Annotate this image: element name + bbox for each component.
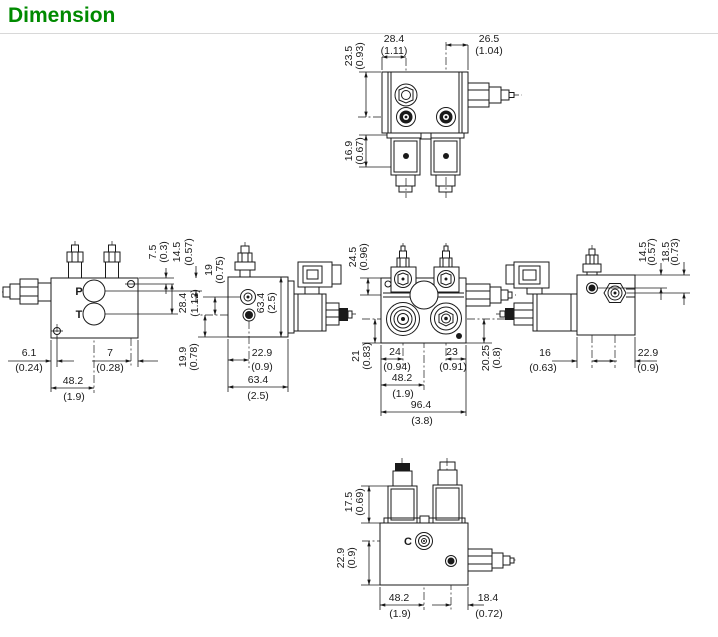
dim-top-width-right-inch: (1.04) — [475, 45, 502, 57]
dim-front-width-inch: (3.8) — [411, 415, 433, 427]
dim-b-port-left-mm: 22.9 — [252, 347, 273, 359]
valve-dimension-drawing: 28.4 (1.11) 26.5 (1.04) 23.5 (0.93) 16.9… — [0, 0, 718, 637]
top-coil-left — [387, 133, 424, 192]
port-t-label: T — [76, 309, 83, 321]
dim-hole-left-inch: (0.24) — [15, 362, 42, 374]
top-coil-right — [427, 133, 464, 192]
dim-right-screw-depth-inch: (0.57) — [646, 238, 658, 265]
bottom-right-fitting — [468, 549, 514, 571]
right-side-stud — [583, 249, 601, 275]
dim-bottom-outlet-offset-inch: (0.72) — [475, 608, 502, 620]
dim-front-half-width-mm: 48.2 — [392, 372, 413, 384]
front-hole-br — [456, 333, 462, 339]
dim-right-port-offset-inch: (0.9) — [637, 362, 659, 374]
dim-port-t-depth-inch: (1.12) — [189, 289, 201, 316]
side-view-b: 63.4 (2.5) 19 (0.75) — [177, 242, 357, 402]
dim-bottom-coil-height-inch: (0.69) — [354, 488, 366, 515]
top-right-fitting — [468, 83, 514, 107]
dim-port-center-mm: 48.2 — [63, 375, 84, 387]
left-side-view: P T 7.5 (0.3) 14.5 (0.57) 28.4 — [2, 238, 202, 403]
dim-top-coil-height-inch: (0.67) — [354, 137, 366, 164]
dim-port-p-depth-inch: (0.57) — [183, 238, 195, 265]
dim-hole-top-inch: (0.3) — [158, 241, 170, 263]
dim-top-height-upper-inch: (0.93) — [354, 42, 366, 69]
right-side-view: 14.5 (0.57) 18.5 (0.73) 16 (0.63) 22.9 (… — [496, 238, 690, 374]
front-right-fitting — [466, 284, 512, 306]
dim-b-depth-inch: (2.5) — [247, 390, 269, 402]
front-cartridge-left — [391, 246, 416, 292]
dim-port-p-depth-mm: 14.5 — [171, 242, 183, 263]
bottom-port-c — [416, 533, 433, 550]
dim-front-port-a-mm: 24 — [389, 346, 401, 358]
dim-bottom-port-edge-inch: (0.9) — [346, 547, 358, 569]
dim-hole-right-mm: 7 — [107, 347, 113, 359]
dim-b-port-left-inch: (0.9) — [251, 361, 273, 373]
top-view: 28.4 (1.11) 26.5 (1.04) 23.5 (0.93) 16.9… — [343, 33, 522, 198]
dim-port-center-inch: (1.9) — [63, 391, 85, 403]
dim-top-width-left-inch: (1.11) — [381, 45, 408, 57]
dim-b-depth-mm: 63.4 — [248, 374, 269, 386]
side-b-stud — [235, 246, 255, 277]
dim-front-top-axis-inch: (0.96) — [358, 243, 370, 270]
front-cartridge-right — [434, 246, 459, 292]
bottom-coil-left — [384, 463, 420, 523]
dim-bottom-port-center-inch: (1.9) — [389, 608, 411, 620]
dimension-drawing-page: Dimension — [0, 0, 718, 637]
front-view: 24.5 (0.96) 21 (0.83) 20.25 (0.8) 24 (0.… — [347, 243, 516, 427]
dim-front-port-b-mm: 23 — [446, 346, 458, 358]
bottom-view: C 17.5 (0. — [335, 458, 518, 620]
dim-front-port-b-inch: (0.91) — [439, 361, 466, 373]
dim-b-port-bottom-inch: (0.78) — [188, 343, 200, 370]
dim-right-screw-offset-mm: 16 — [539, 347, 551, 359]
dim-front-width-mm: 96.4 — [411, 399, 432, 411]
dim-hole-right-inch: (0.28) — [96, 362, 123, 374]
dim-bottom-outlet-offset-mm: 18.4 — [478, 592, 499, 604]
port-p-label: P — [75, 286, 82, 298]
side-b-solenoid — [288, 262, 352, 333]
dim-right-port-depth-inch: (0.73) — [669, 238, 681, 265]
left-side-fitting — [3, 279, 51, 304]
dim-bottom-port-center-mm: 48.2 — [389, 592, 410, 604]
dim-top-width-right-mm: 26.5 — [479, 33, 500, 45]
dim-front-axis-bl-inch: (0.83) — [361, 342, 373, 369]
dim-front-axis-br-inch: (0.8) — [491, 347, 503, 369]
front-center-boss — [410, 281, 438, 309]
dim-hole-left-mm: 6.1 — [22, 347, 37, 359]
left-side-studs — [67, 245, 120, 278]
dim-b-port-top-inch: (0.75) — [214, 256, 226, 283]
dim-right-screw-offset-inch: (0.63) — [529, 362, 556, 374]
dim-port-t-depth-mm: 28.4 — [177, 293, 189, 314]
dim-right-port-offset-mm: 22.9 — [638, 347, 659, 359]
bottom-coil-right — [429, 462, 465, 523]
bottom-port-c-label: C — [404, 536, 412, 548]
dim-b-height-inch: (2.5) — [266, 292, 278, 314]
dim-top-width-left-mm: 28.4 — [384, 33, 405, 45]
